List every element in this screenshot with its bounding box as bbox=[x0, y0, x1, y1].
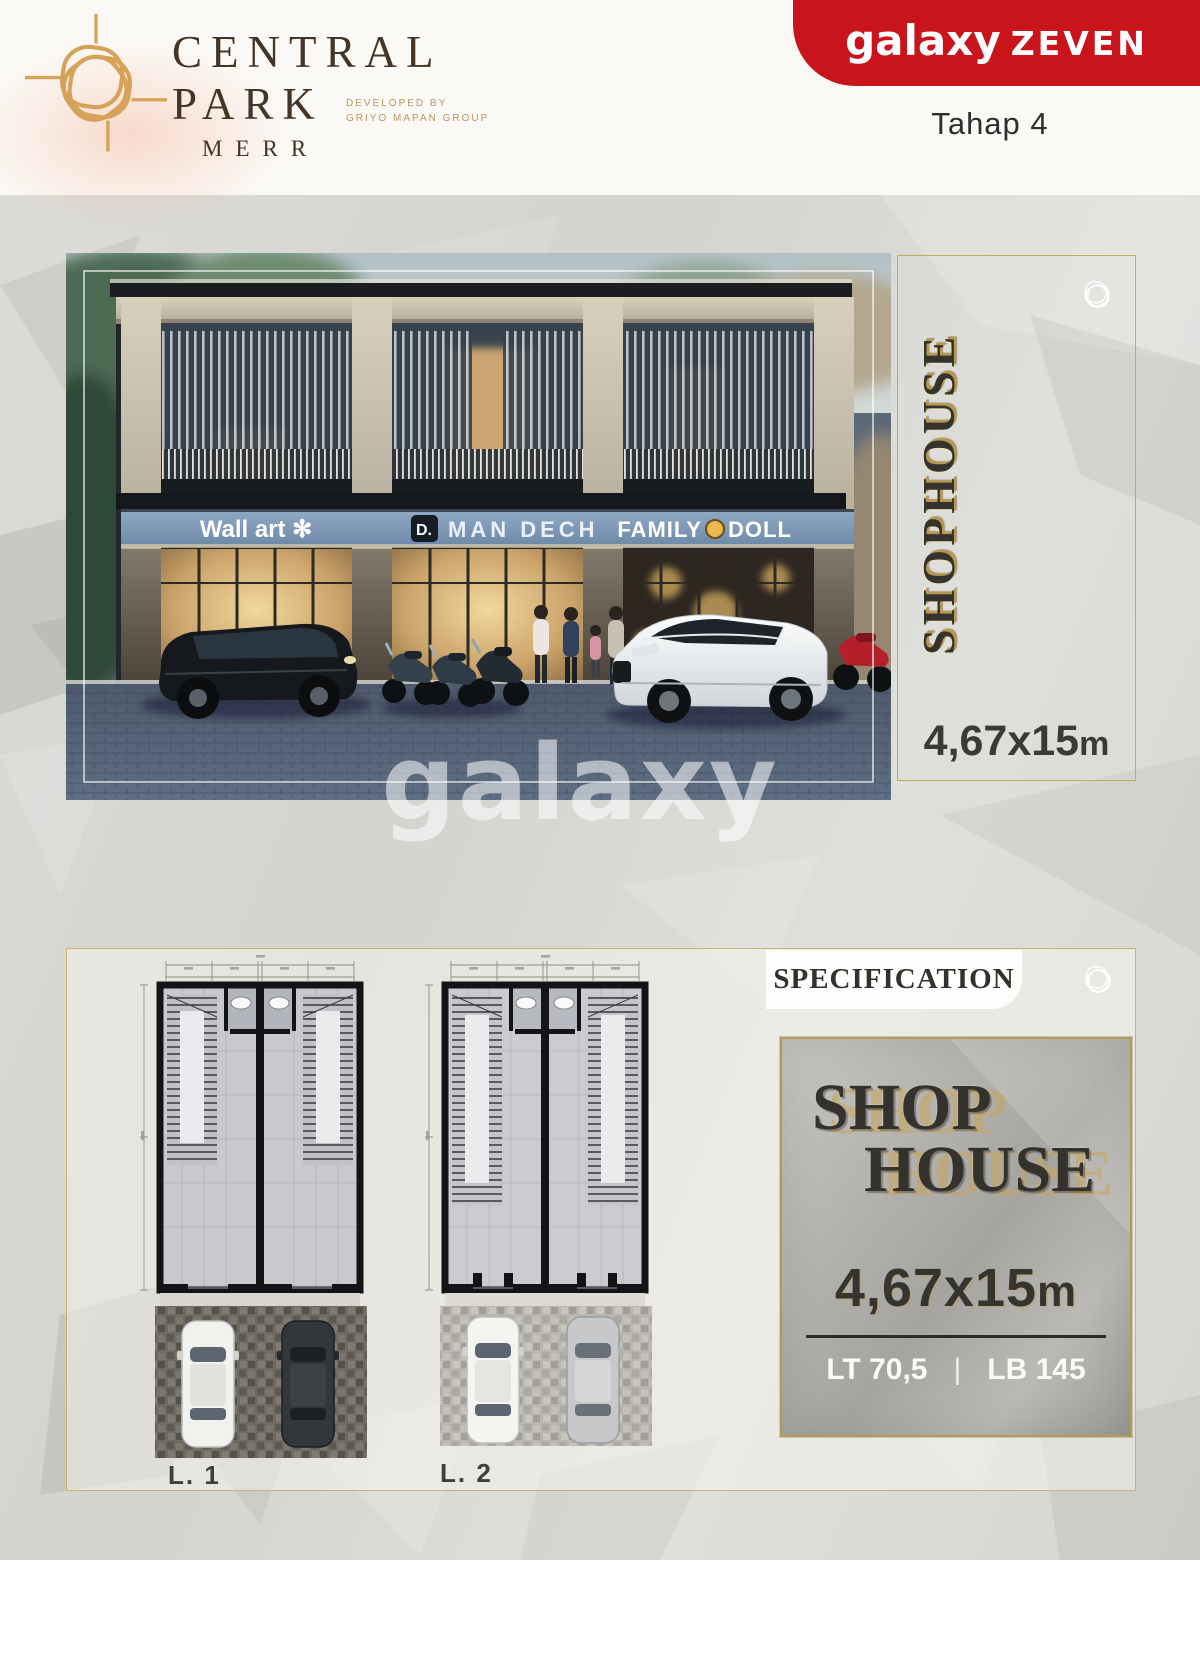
floorplan-level1 bbox=[130, 955, 390, 1465]
panel-flower-icon bbox=[1071, 268, 1123, 320]
shophouse-render-photo: Wall art ✻ D. MAN DECH FAMILY DOLL bbox=[66, 253, 891, 800]
spec-title-block: SHOP HOUSE SHOP HOUSE bbox=[782, 1075, 1130, 1235]
galaxy-watermark: galaxy bbox=[340, 722, 820, 844]
spec-areas-row: LT 70,5 | LB 145 bbox=[782, 1353, 1130, 1387]
car-top-white bbox=[462, 1317, 524, 1443]
spec-size-label: 4,67x15m bbox=[782, 1257, 1130, 1319]
developer-credit-line1: DEVELOPED BY bbox=[346, 96, 489, 111]
shophouse-vertical-title: SHOPHOUSE bbox=[912, 274, 1022, 714]
developer-credit-line2: GRIYO MAPAN GROUP bbox=[346, 111, 489, 126]
size-value: 4,67x15 bbox=[924, 717, 1079, 765]
plan-level2-label: L. 2 bbox=[440, 1458, 493, 1489]
shophouse-side-panel: SHOPHOUSE 4,67x15m bbox=[897, 255, 1136, 781]
shop-sign-family: FAMILY bbox=[617, 517, 702, 542]
spec-flower-icon bbox=[1072, 953, 1124, 1005]
shop-sign-man-dech: MAN DECH bbox=[448, 517, 599, 542]
car-top-silver bbox=[562, 1317, 624, 1443]
spec-size-unit: m bbox=[1037, 1267, 1077, 1316]
specification-header: SPECIFICATION bbox=[766, 950, 1022, 1009]
land-area-label: LT 70,5 bbox=[826, 1353, 927, 1387]
shop-sign-wall-art: Wall art ✻ bbox=[200, 516, 313, 543]
shop-sign-man-dech-badge: D. bbox=[416, 522, 432, 539]
spec-title1: SHOP bbox=[812, 1075, 992, 1141]
ribbon-brand-wordmark: galaxy bbox=[845, 20, 1001, 62]
floorplan-level2 bbox=[415, 955, 675, 1465]
brochure-page: CENTRAL PARK MERR DEVELOPED BY GRIYO MAP… bbox=[0, 0, 1200, 1676]
developer-credit: DEVELOPED BY GRIYO MAPAN GROUP bbox=[346, 96, 489, 126]
brand-subtitle: MERR bbox=[202, 136, 319, 162]
building-area-label: LB 145 bbox=[987, 1353, 1085, 1387]
brand-title-line1: CENTRAL bbox=[172, 26, 443, 78]
size-unit: m bbox=[1079, 725, 1109, 763]
phase-label: Tahap 4 bbox=[880, 106, 1100, 142]
car-top-white bbox=[177, 1321, 239, 1447]
family-doll-mascot-icon bbox=[706, 520, 724, 538]
spec-divider-rule bbox=[806, 1335, 1105, 1338]
area-separator: | bbox=[953, 1353, 961, 1387]
spec-size-value: 4,67x15 bbox=[835, 1258, 1037, 1318]
galaxy-zeven-ribbon: galaxy ZEVEN bbox=[793, 0, 1200, 86]
shophouse-size-label: 4,67x15m bbox=[898, 717, 1135, 766]
header: CENTRAL PARK MERR DEVELOPED BY GRIYO MAP… bbox=[0, 0, 1200, 195]
ribbon-series-label: ZEVEN bbox=[1011, 27, 1148, 60]
plan-level1-label: L. 1 bbox=[168, 1460, 221, 1491]
car-top-dark bbox=[277, 1321, 339, 1447]
central-park-flower-icon bbox=[22, 6, 170, 158]
shophouse-render: Wall art ✻ D. MAN DECH FAMILY DOLL bbox=[66, 253, 891, 800]
shop-sign-doll: DOLL bbox=[728, 517, 792, 542]
specification-card: SHOP HOUSE SHOP HOUSE 4,67x15m LT 70,5 |… bbox=[780, 1037, 1132, 1437]
spec-title2: HOUSE bbox=[864, 1137, 1095, 1203]
